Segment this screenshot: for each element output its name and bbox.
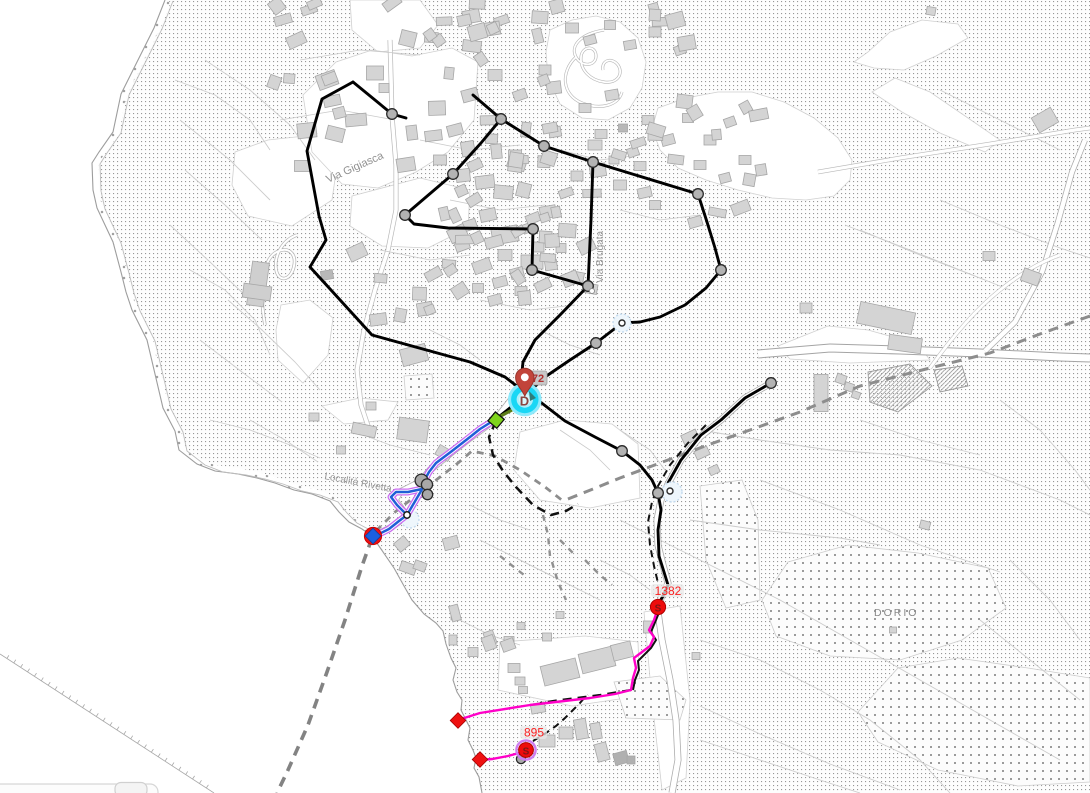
svg-text:895: 895: [524, 726, 544, 740]
svg-text:S: S: [655, 604, 662, 615]
svg-text:DORIO: DORIO: [874, 607, 918, 619]
svg-text:S: S: [523, 747, 530, 758]
svg-text:1382: 1382: [655, 584, 682, 598]
svg-text:Via Brugata: Via Brugata: [595, 230, 606, 283]
